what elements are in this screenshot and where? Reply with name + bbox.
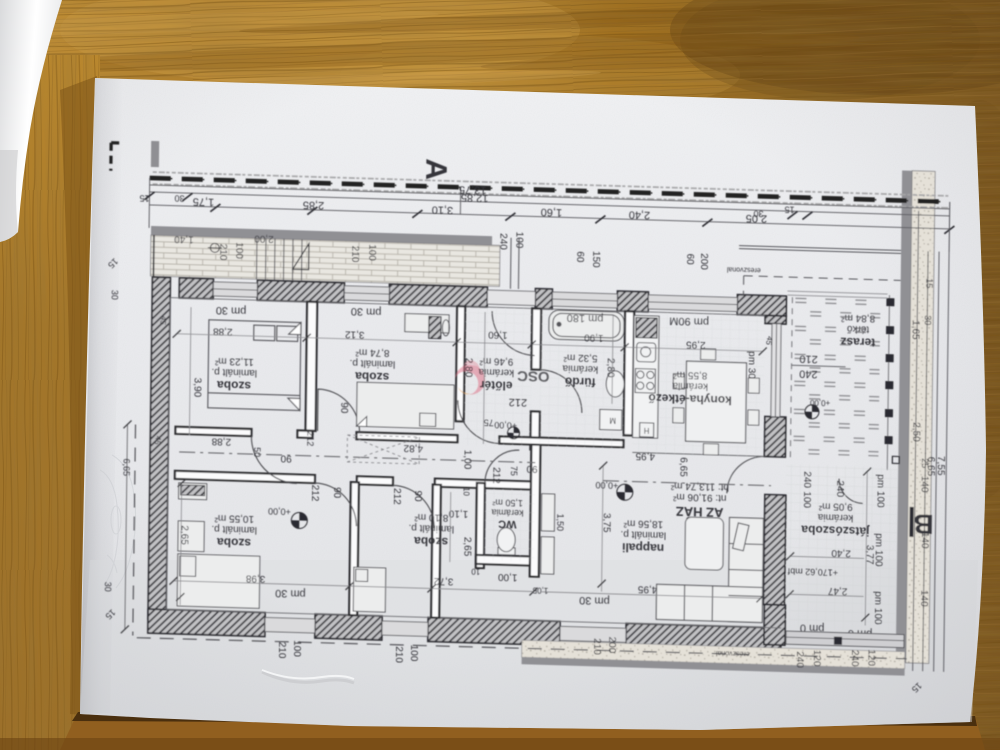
svg-text:212: 212 [305, 431, 315, 446]
svg-text:90: 90 [331, 487, 342, 499]
svg-text:fürdő: fürdő [565, 374, 596, 389]
svg-text:240: 240 [794, 651, 805, 668]
svg-text:pm 100: pm 100 [874, 474, 885, 508]
svg-text:3,72: 3,72 [433, 575, 453, 587]
svg-text:210: 210 [799, 353, 818, 366]
svg-text:30: 30 [923, 315, 933, 325]
svg-text:30: 30 [103, 582, 113, 592]
svg-text:90: 90 [280, 452, 292, 463]
svg-text:1,75: 1,75 [193, 195, 215, 208]
svg-text:210: 210 [276, 642, 287, 659]
svg-text:A: A [419, 158, 452, 181]
svg-text:pm 30: pm 30 [275, 587, 306, 600]
svg-text:30: 30 [753, 209, 763, 219]
svg-text:térkő: térkő [846, 323, 869, 335]
svg-text:pm 180: pm 180 [567, 312, 604, 325]
svg-text:WC: WC [498, 517, 517, 530]
svg-text:ereszvonal: ereszvonal [726, 265, 760, 273]
svg-text:25: 25 [920, 458, 930, 468]
svg-text:8,55 m²: 8,55 m² [673, 369, 708, 381]
svg-text:1,40: 1,40 [174, 233, 194, 245]
svg-text:2,95: 2,95 [686, 338, 706, 350]
svg-text:100: 100 [408, 644, 419, 661]
svg-text:9,05 m²: 9,05 m² [818, 500, 853, 512]
svg-text:szoba: szoba [217, 378, 252, 393]
svg-text:15: 15 [784, 205, 794, 215]
svg-text:212: 212 [309, 484, 320, 501]
svg-text:75: 75 [484, 418, 494, 428]
svg-text:30: 30 [174, 193, 184, 203]
svg-text:15: 15 [924, 278, 934, 288]
svg-text:12,85: 12,85 [461, 191, 489, 204]
svg-text:2,65: 2,65 [461, 537, 472, 557]
svg-text:2,50: 2,50 [910, 422, 921, 442]
svg-text:60: 60 [684, 253, 695, 265]
svg-text:100: 100 [366, 244, 377, 261]
svg-text:szoba: szoba [414, 534, 449, 549]
svg-text:10: 10 [462, 487, 471, 497]
svg-text:120: 120 [865, 649, 876, 666]
svg-text:240: 240 [849, 650, 860, 667]
svg-text:200: 200 [606, 636, 617, 653]
svg-text:2,85: 2,85 [303, 199, 325, 212]
svg-text:4,82: 4,82 [403, 442, 423, 454]
svg-text:+170,62 mbf: +170,62 mbf [787, 566, 838, 578]
svg-text:terasz: terasz [840, 335, 875, 350]
svg-text:240: 240 [799, 368, 818, 381]
svg-text:3,12: 3,12 [345, 328, 365, 340]
svg-text:1,50 m²: 1,50 m² [492, 497, 523, 508]
svg-text:7,55: 7,55 [935, 456, 946, 476]
svg-text:140: 140 [918, 476, 929, 493]
svg-text:szoba: szoba [355, 369, 390, 384]
svg-text:75: 75 [509, 466, 519, 476]
svg-text:210: 210 [393, 646, 404, 663]
svg-text:+0,00: +0,00 [595, 480, 618, 491]
svg-text:1,90: 1,90 [584, 331, 604, 343]
svg-text:1,05: 1,05 [532, 585, 548, 594]
svg-text:11,23 m²: 11,23 m² [214, 355, 254, 367]
svg-text:2,65: 2,65 [178, 525, 189, 545]
svg-text:2,00: 2,00 [254, 232, 274, 244]
svg-text:H: H [643, 426, 649, 435]
svg-text:240: 240 [834, 480, 845, 497]
svg-text:10,55 m²: 10,55 m² [214, 512, 254, 524]
svg-text:M: M [609, 416, 616, 425]
svg-text:2,80: 2,80 [463, 358, 474, 378]
svg-text:8,84 m²: 8,84 m² [841, 312, 876, 324]
svg-text:9,46 m²: 9,46 m² [479, 355, 514, 367]
svg-text:pm 30: pm 30 [579, 594, 610, 607]
svg-text:1,50: 1,50 [555, 513, 565, 531]
svg-text:+0,00: +0,00 [268, 506, 291, 517]
svg-text:pm 100: pm 100 [872, 533, 883, 567]
svg-text:60: 60 [574, 251, 585, 263]
svg-text:1,00: 1,00 [497, 571, 517, 583]
svg-text:212: 212 [490, 467, 501, 484]
svg-text:3,98: 3,98 [245, 572, 265, 584]
svg-text:212: 212 [391, 488, 402, 505]
svg-text:1,60: 1,60 [541, 206, 563, 219]
svg-text:1,10: 1,10 [448, 507, 468, 519]
svg-text:2,47: 2,47 [827, 585, 847, 597]
svg-text:pm 30: pm 30 [216, 304, 247, 317]
svg-text:nappali: nappali [622, 540, 664, 555]
svg-text:240: 240 [497, 233, 508, 250]
svg-text:1,00: 1,00 [461, 450, 472, 470]
svg-text:konyha-étkező: konyha-étkező [648, 391, 732, 407]
svg-text:pm 90M: pm 90M [669, 315, 709, 328]
svg-text:240: 240 [801, 471, 812, 488]
svg-text:18,56 m²: 18,56 m² [623, 517, 663, 529]
svg-text:210: 210 [349, 246, 360, 263]
svg-text:AZ HÁZ: AZ HÁZ [676, 504, 724, 520]
svg-text:212: 212 [509, 396, 528, 409]
svg-text:200: 200 [698, 253, 709, 270]
svg-text:játszószoba: játszószoba [801, 523, 871, 539]
svg-text:120: 120 [811, 650, 822, 667]
svg-text:90: 90 [526, 463, 538, 474]
svg-text:15: 15 [139, 193, 149, 203]
svg-text:90: 90 [338, 402, 349, 414]
svg-text:6,65: 6,65 [121, 458, 131, 476]
svg-text:B: B [913, 509, 934, 541]
svg-text:140: 140 [918, 590, 929, 607]
svg-text:ereszvonal: ereszvonal [715, 649, 749, 657]
svg-text:150: 150 [590, 251, 601, 268]
svg-text:1,60: 1,60 [488, 328, 508, 340]
svg-text:10: 10 [471, 567, 481, 576]
svg-text:8,10 m²: 8,10 m² [414, 511, 449, 523]
svg-text:210: 210 [217, 244, 228, 261]
svg-text:210: 210 [591, 638, 602, 655]
svg-text:4,95: 4,95 [635, 450, 655, 462]
svg-text:2,40: 2,40 [629, 208, 651, 221]
svg-text:100: 100 [233, 242, 244, 259]
svg-text:3,90: 3,90 [191, 378, 202, 398]
svg-text:90: 90 [412, 490, 423, 502]
svg-text:5,32 m²: 5,32 m² [563, 351, 598, 363]
svg-text:OSC: OSC [517, 367, 550, 385]
svg-text:bt: 113,74 m²: bt: 113,74 m² [670, 480, 729, 493]
svg-text:pm 30: pm 30 [351, 305, 382, 318]
svg-text:szoba: szoba [217, 535, 252, 550]
svg-text:50: 50 [252, 447, 262, 457]
svg-text:2,80: 2,80 [605, 358, 616, 378]
svg-text:4,95: 4,95 [637, 583, 657, 595]
svg-text:2,88: 2,88 [211, 435, 231, 447]
svg-text:pm 30: pm 30 [746, 351, 757, 380]
svg-text:100: 100 [291, 640, 302, 657]
svg-text:+0,00: +0,00 [809, 398, 830, 408]
svg-text:3,10: 3,10 [432, 203, 454, 216]
svg-text:100: 100 [801, 491, 812, 508]
svg-text:30: 30 [110, 290, 120, 300]
svg-text:1,65: 1,65 [909, 320, 920, 340]
svg-text:pm 100: pm 100 [872, 591, 883, 625]
svg-text:2,40: 2,40 [831, 547, 851, 559]
svg-text:6,65: 6,65 [677, 457, 688, 477]
svg-text:8,74 m²: 8,74 m² [355, 346, 390, 358]
